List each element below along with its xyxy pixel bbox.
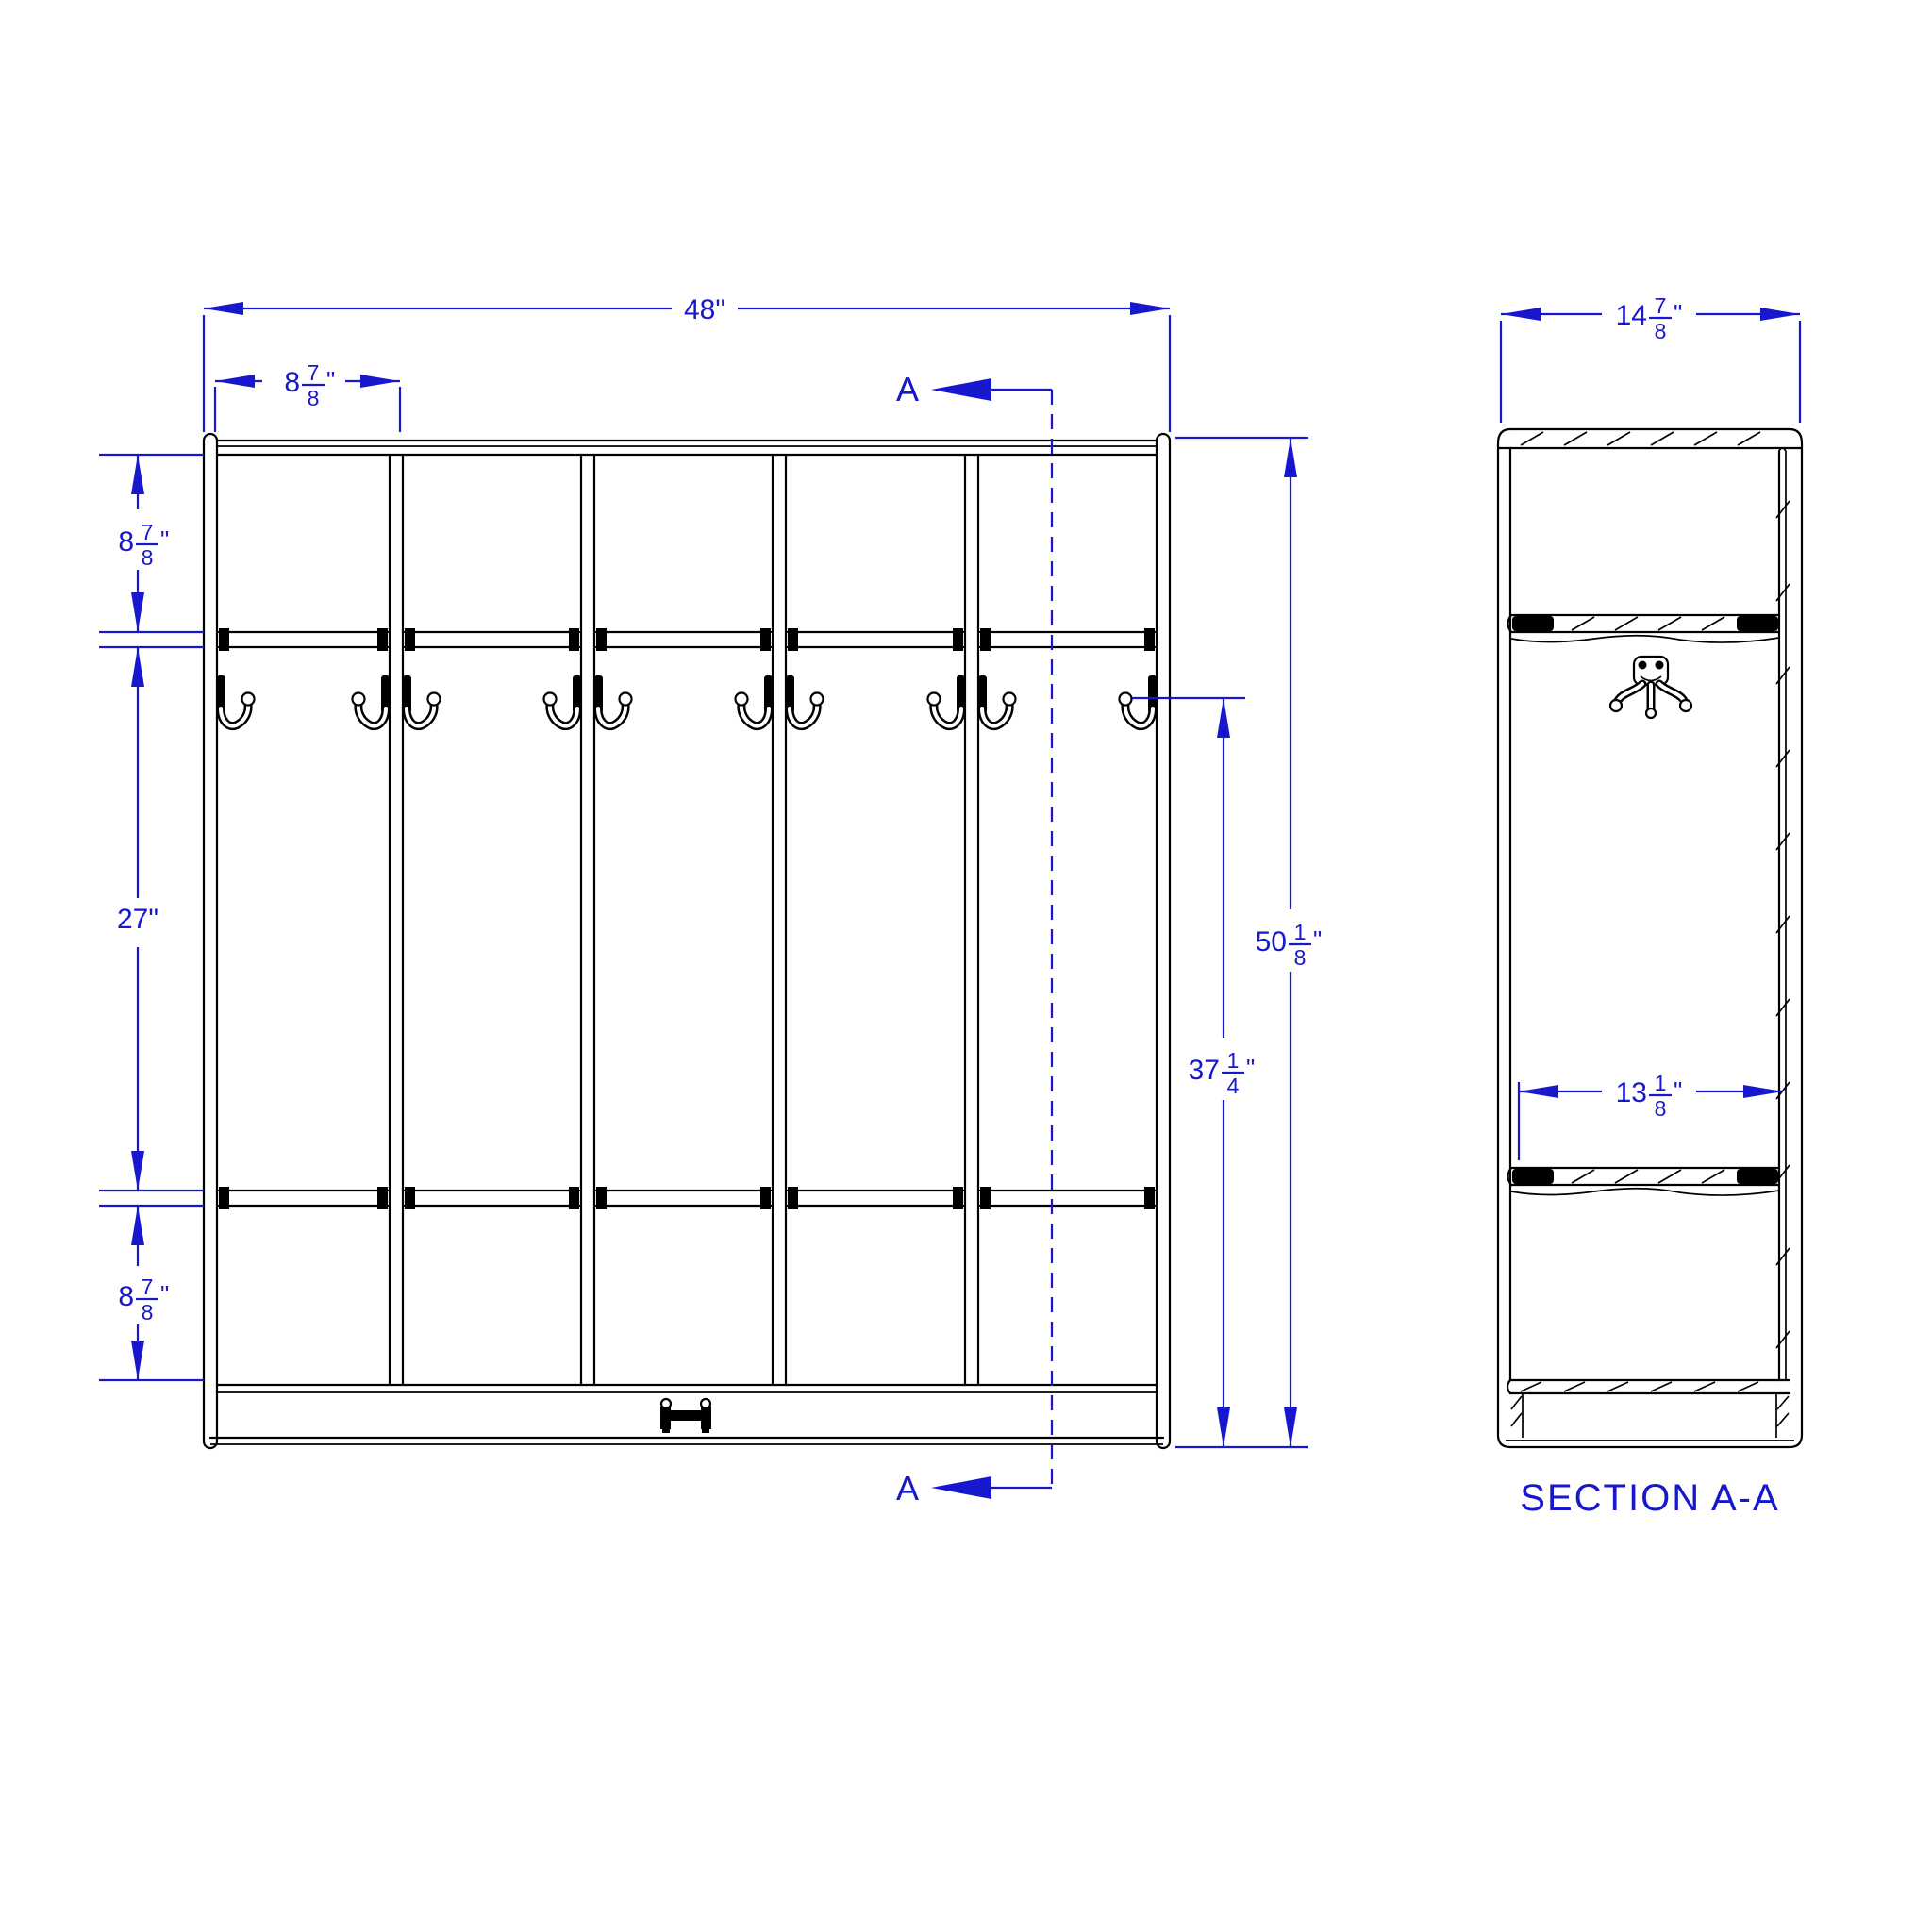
dim-top-height-den: 8 <box>142 545 154 570</box>
dim-top-height-whole: 8 <box>118 526 134 558</box>
dim-section-width-quote: " <box>326 366 335 394</box>
dim-depth-num: 7 <box>1655 293 1667 318</box>
dim-hook-height-num: 1 <box>1227 1048 1240 1073</box>
dim-overall-height-quote: " <box>1313 925 1322 954</box>
dim-overall-height-whole: 50 <box>1256 926 1287 958</box>
dim-depth-whole: 14 <box>1616 300 1647 331</box>
dim-section-width-num: 7 <box>308 360 320 385</box>
dim-interior-depth-num: 1 <box>1655 1071 1667 1095</box>
dim-overall-height-num: 1 <box>1294 920 1307 944</box>
section-marker-bottom: A <box>896 1469 919 1507</box>
dim-hook-height-whole: 37 <box>1189 1055 1220 1086</box>
coat-locker-technical-drawing: 48" 8 7 8 " 8 7 8 " <box>0 0 1932 1932</box>
dim-interior-depth-whole: 13 <box>1616 1077 1647 1108</box>
dim-interior-depth-quote: " <box>1674 1076 1682 1105</box>
dim-section-width-den: 8 <box>308 386 320 410</box>
dim-depth-den: 8 <box>1655 319 1667 343</box>
dim-bottom-height-quote: " <box>160 1280 169 1308</box>
dim-middle-height-label: 27" <box>117 904 158 935</box>
dim-hook-height-den: 4 <box>1227 1074 1240 1098</box>
dim-hook-height-quote: " <box>1246 1054 1255 1082</box>
dim-depth-quote: " <box>1674 299 1682 327</box>
dim-section-width-whole: 8 <box>284 367 300 398</box>
dim-top-height-quote: " <box>160 525 169 554</box>
dim-bottom-height-num: 7 <box>142 1274 154 1299</box>
dim-bottom-height-den: 8 <box>142 1300 154 1324</box>
section-view-title: SECTION A-A <box>1520 1477 1779 1519</box>
dim-interior-depth-den: 8 <box>1655 1096 1667 1121</box>
dim-bottom-height-whole: 8 <box>118 1281 134 1312</box>
dim-top-height-num: 7 <box>142 520 154 544</box>
dim-overall-height-den: 8 <box>1294 945 1307 970</box>
section-marker-top: A <box>896 370 919 408</box>
dim-overall-width-label: 48" <box>684 294 725 325</box>
